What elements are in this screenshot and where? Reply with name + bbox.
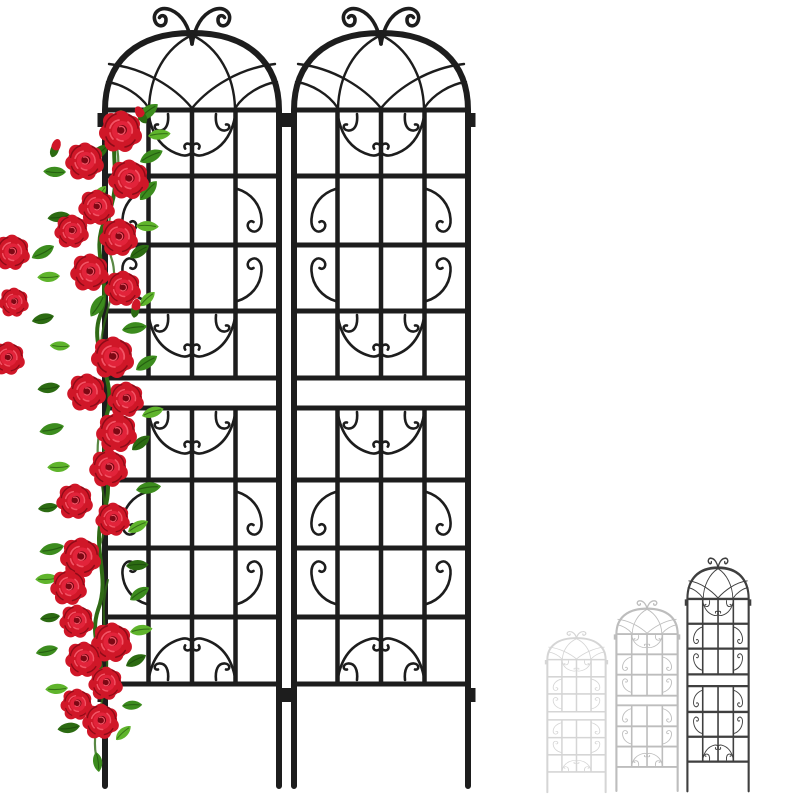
size-variant-large xyxy=(686,558,750,791)
size-variant-small xyxy=(546,632,607,793)
size-variants xyxy=(546,558,750,792)
trellis-pair xyxy=(101,9,472,786)
rose-blossom xyxy=(56,484,93,519)
product-image xyxy=(0,0,800,800)
size-variant-medium xyxy=(615,601,679,791)
rose-blossom xyxy=(82,704,119,739)
rose-blossom xyxy=(59,605,93,638)
rose-vine xyxy=(0,102,171,772)
rose-blossom xyxy=(96,413,137,452)
rose-blossom xyxy=(99,219,138,256)
rose-blossom xyxy=(99,111,142,153)
product-photo-canvas xyxy=(0,0,800,800)
rose-blossom xyxy=(0,342,25,375)
rose-blossom xyxy=(91,337,134,379)
rose-blossom xyxy=(67,374,106,411)
rose-blossom xyxy=(88,667,122,700)
rose-blossom xyxy=(107,382,144,417)
rose-blossom xyxy=(0,288,29,317)
rose-blossom xyxy=(0,235,30,270)
trellis-panel-right xyxy=(290,9,472,786)
